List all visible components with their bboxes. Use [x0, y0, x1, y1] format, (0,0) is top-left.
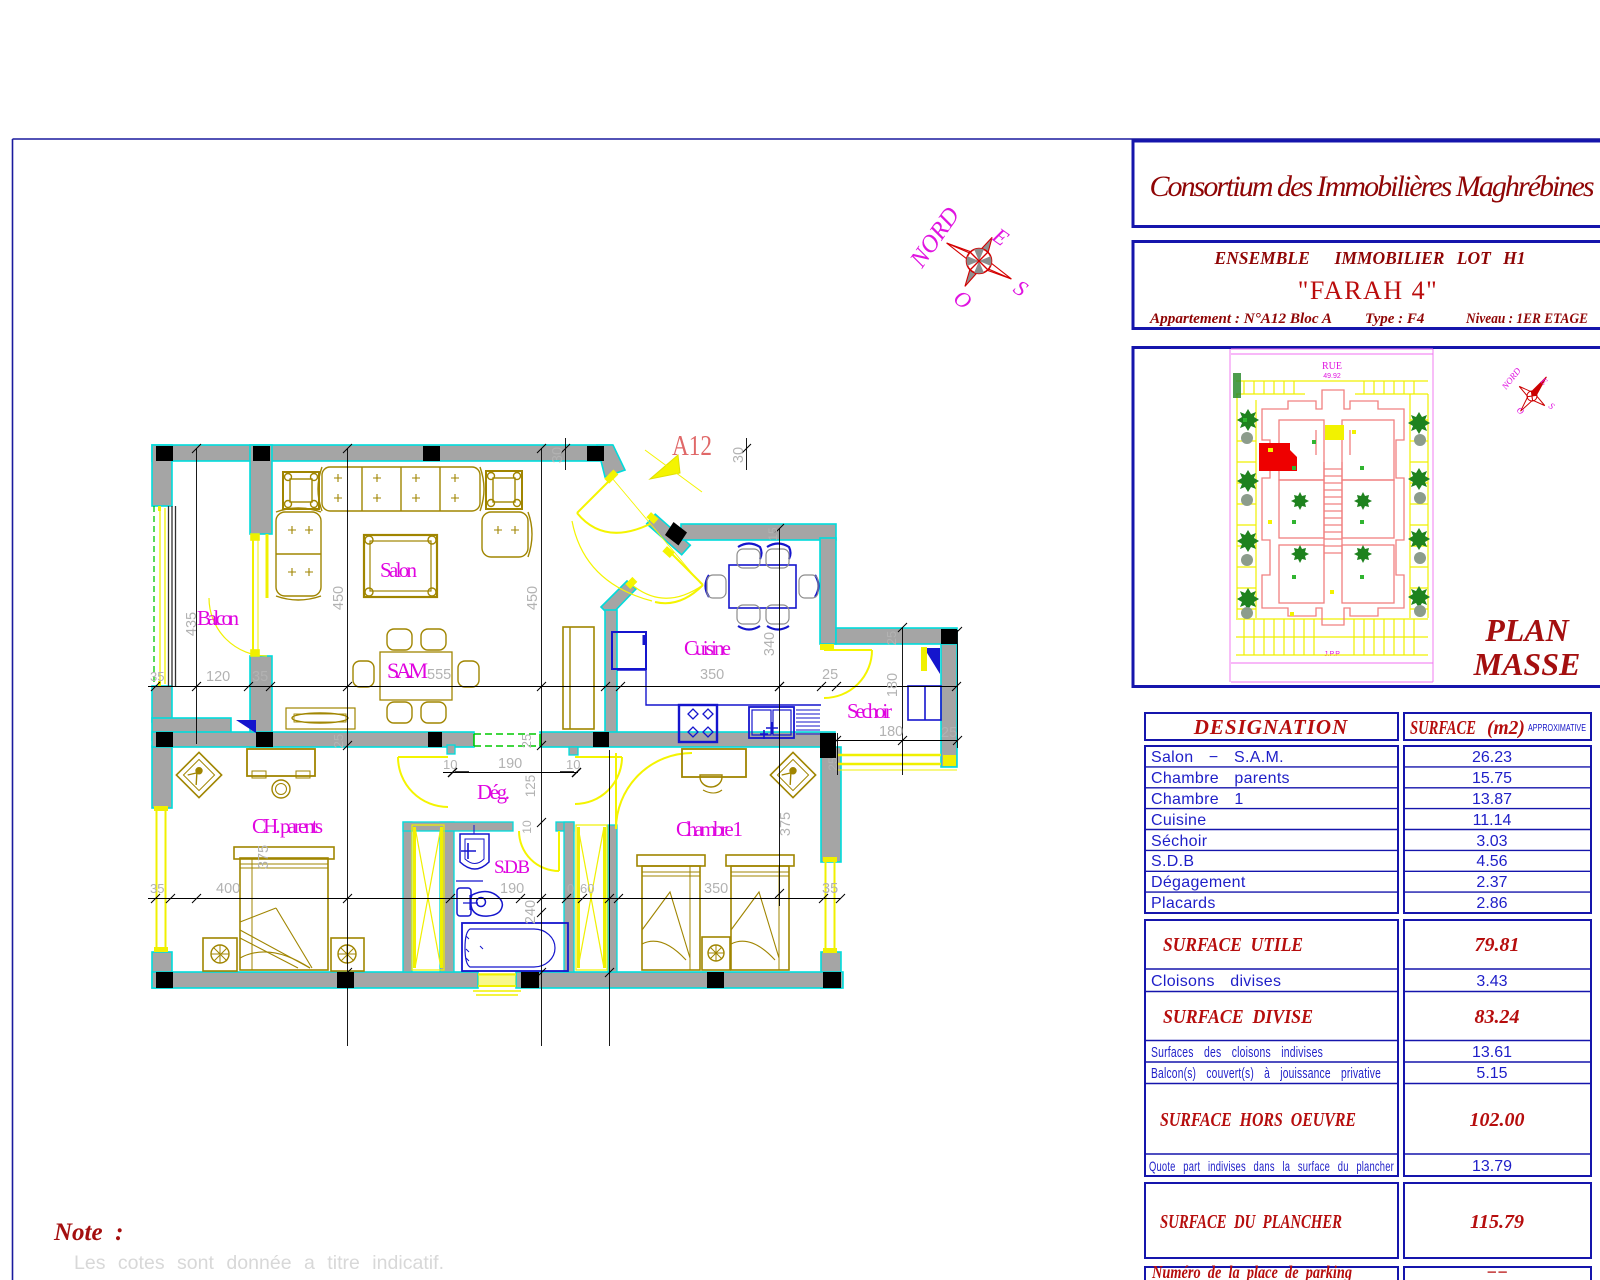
svg-text:S.D.B: S.D.B	[494, 857, 530, 878]
svg-text:13.79: 13.79	[1472, 1158, 1512, 1175]
svg-text:375: 375	[256, 845, 272, 869]
svg-text:DESIGNATION: DESIGNATION	[1193, 715, 1349, 739]
svg-text:190: 190	[500, 881, 524, 897]
svg-text:35: 35	[150, 881, 164, 896]
svg-text:450: 450	[331, 586, 347, 610]
svg-text:25: 25	[826, 757, 840, 771]
svg-text:Cuisine: Cuisine	[684, 636, 731, 660]
svg-text:3.03: 3.03	[1476, 833, 1507, 850]
svg-text:SURFACE DIVISE: SURFACE DIVISE	[1163, 1006, 1313, 1028]
svg-text:5.15: 5.15	[1476, 1065, 1507, 1082]
svg-text:−−: −−	[1486, 1262, 1508, 1280]
svg-text:13.61: 13.61	[1472, 1044, 1512, 1061]
svg-text:340: 340	[762, 632, 778, 656]
svg-text:26.23: 26.23	[1472, 749, 1512, 766]
svg-text:SURFACE HORS OEUVRE: SURFACE HORS OEUVRE	[1160, 1109, 1356, 1131]
svg-text:Placards: Placards	[1151, 895, 1216, 912]
svg-text:11.14: 11.14	[1473, 812, 1512, 829]
svg-text:375: 375	[778, 812, 794, 836]
svg-text:25: 25	[884, 631, 899, 645]
svg-text:Séchoir: Séchoir	[1151, 833, 1208, 850]
svg-text:Chambre 1: Chambre 1	[1151, 791, 1244, 808]
svg-text:120: 120	[206, 669, 230, 685]
svg-text:25: 25	[519, 734, 534, 748]
svg-text:83.24: 83.24	[1475, 1006, 1520, 1028]
svg-text:10: 10	[443, 757, 457, 772]
svg-text:Balcon(s) couvert(s) à joui: Balcon(s) couvert(s) à jouissance privat…	[1151, 1065, 1381, 1082]
svg-text:SURFACE: SURFACE	[1410, 718, 1476, 739]
svg-text:ENSEMBLE IMMOBILIER LOT H1: ENSEMBLE IMMOBILIER LOT H1	[1213, 248, 1525, 268]
svg-text:25: 25	[822, 667, 838, 683]
svg-text:13.87: 13.87	[1472, 791, 1512, 808]
svg-text:30: 30	[550, 447, 566, 463]
svg-text:10: 10	[566, 757, 580, 772]
svg-text:30: 30	[731, 447, 747, 463]
svg-text:Numéro de la place de par: Numéro de la place de parking	[1151, 1262, 1352, 1280]
svg-text:115.79: 115.79	[1470, 1211, 1524, 1233]
svg-text:190: 190	[498, 756, 522, 772]
svg-text:2.86: 2.86	[1476, 895, 1507, 912]
svg-text:A12: A12	[672, 430, 712, 462]
svg-text:Note :: Note :	[53, 1219, 123, 1246]
svg-text:10: 10	[520, 820, 534, 834]
svg-text:25: 25	[331, 734, 346, 748]
svg-text:Chambre 1: Chambre 1	[676, 817, 743, 841]
svg-text:180: 180	[885, 673, 901, 697]
svg-text:S.D.B: S.D.B	[1151, 853, 1194, 870]
svg-text:4.56: 4.56	[1476, 853, 1507, 870]
svg-text:15: 15	[766, 527, 780, 541]
svg-text:CH. parents: CH. parents	[252, 814, 323, 838]
svg-text:2.37: 2.37	[1476, 874, 1507, 891]
svg-text:Quote part indivises dans: Quote part indivises dans la surface du …	[1149, 1159, 1394, 1174]
svg-text:Balcon: Balcon	[197, 606, 240, 630]
svg-text:35: 35	[252, 669, 268, 685]
svg-text:SURFACE DU PLANCHER: SURFACE DU PLANCHER	[1160, 1211, 1342, 1233]
svg-text:RUE: RUE	[1322, 361, 1342, 372]
svg-text:350: 350	[700, 667, 724, 683]
svg-text:240: 240	[523, 900, 539, 924]
svg-text:555: 555	[427, 667, 451, 683]
svg-text:(m2): (m2)	[1487, 718, 1525, 739]
svg-text:MASSE: MASSE	[1473, 646, 1581, 682]
svg-text:25: 25	[941, 725, 957, 741]
svg-text:Cuisine: Cuisine	[1151, 812, 1206, 829]
svg-text:400: 400	[216, 881, 240, 897]
svg-text:60: 60	[580, 881, 594, 896]
svg-text:Les cotes sont donnée a titre: Les cotes sont donnée a titre indicatif.	[74, 1252, 446, 1274]
svg-text:Sechoir: Sechoir	[847, 699, 892, 723]
svg-text:125: 125	[523, 775, 538, 798]
svg-text:450: 450	[525, 586, 541, 610]
svg-text:35: 35	[822, 881, 838, 897]
svg-text:Dég.: Dég.	[477, 780, 510, 804]
svg-text:Salon − S.A.M.: Salon − S.A.M.	[1151, 749, 1284, 766]
svg-text:SURFACE UTILE: SURFACE UTILE	[1163, 934, 1303, 956]
svg-text:S.A.M: S.A.M	[387, 658, 428, 683]
svg-text:Dégagement: Dégagement	[1151, 874, 1246, 891]
svg-text:Appartement : N°A12 Bloc AType: Appartement : N°A12 Bloc AType : F4Nivea…	[1149, 311, 1588, 327]
svg-text:Cloisons divises: Cloisons divises	[1151, 973, 1281, 990]
svg-text:Salon: Salon	[380, 558, 418, 582]
svg-text:180: 180	[879, 724, 903, 740]
svg-text:35: 35	[150, 669, 164, 684]
svg-text:350: 350	[704, 881, 728, 897]
svg-text:Surfaces des cloisons indiv: Surfaces des cloisons indivises	[1151, 1044, 1323, 1061]
svg-text:Chambre parents: Chambre parents	[1151, 770, 1290, 787]
svg-text:435: 435	[184, 612, 200, 636]
svg-text:0: 0	[567, 881, 574, 896]
svg-text:15.75: 15.75	[1472, 770, 1512, 787]
svg-text:49.92: 49.92	[1323, 373, 1341, 380]
svg-text:PLAN: PLAN	[1484, 612, 1570, 648]
svg-text:102.00: 102.00	[1470, 1109, 1525, 1131]
svg-text:3.43: 3.43	[1476, 973, 1507, 990]
svg-text:"FARAH 4": "FARAH 4"	[1298, 276, 1438, 305]
svg-text:APPROXIMATIVE: APPROXIMATIVE	[1528, 722, 1586, 734]
svg-text:79.81: 79.81	[1475, 934, 1520, 956]
svg-text:Consortium des Immobilières Ma: Consortium des Immobilières Maghrébines	[1150, 170, 1595, 203]
